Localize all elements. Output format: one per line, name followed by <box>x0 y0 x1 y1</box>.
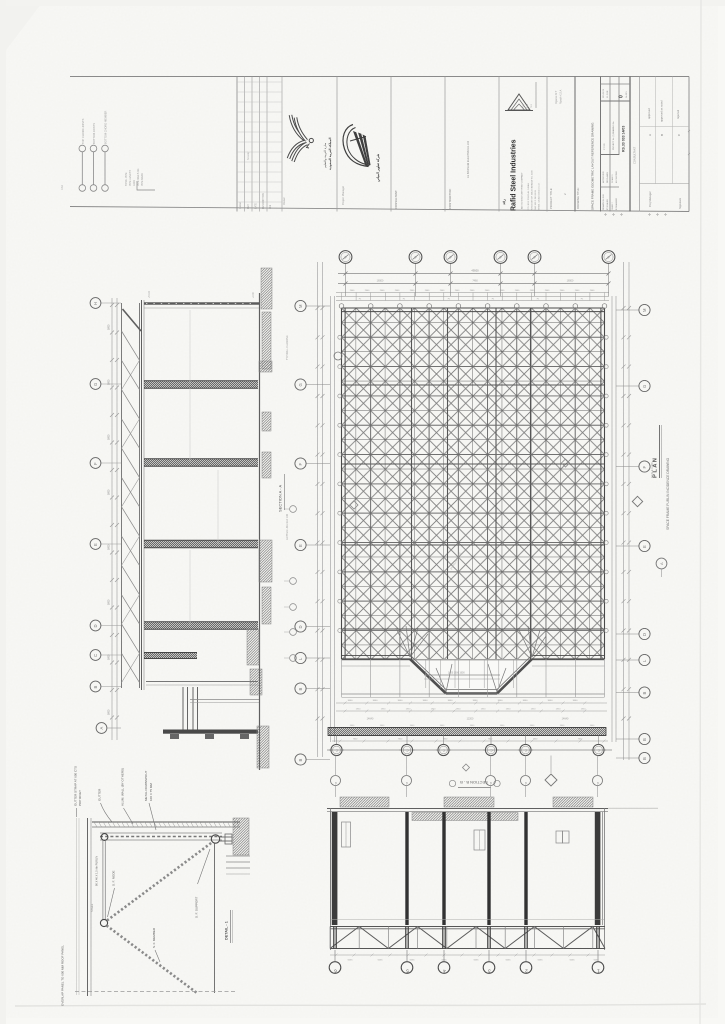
svg-text:SPACE FRAME PURLIN INCIDENCE D: SPACE FRAME PURLIN INCIDENCE DRAWING <box>666 457 670 530</box>
svg-text:CONSULTANT: CONSULTANT <box>633 146 637 164</box>
svg-text:B: B <box>298 688 303 691</box>
svg-text:G: G <box>93 383 98 386</box>
svg-text:3660: 3660 <box>498 700 504 702</box>
svg-text:FAX 966 3 340 1109: FAX 966 3 340 1109 <box>534 189 537 210</box>
svg-text:U: U <box>442 749 446 751</box>
svg-text:D: D <box>298 625 303 628</box>
svg-text:DD B.AMIN: DD B.AMIN <box>606 172 609 183</box>
svg-text:TOP CHORD JOINTS: TOP CHORD JOINTS <box>81 118 85 144</box>
svg-text:P.TYPE: P.TYPE <box>604 142 606 150</box>
svg-text:A: A <box>659 562 664 565</box>
svg-text:1830: 1830 <box>581 709 587 711</box>
svg-text:REVISION: REVISION <box>603 88 605 98</box>
svg-text:U: U <box>335 749 339 751</box>
svg-text:16500: 16500 <box>377 280 384 283</box>
svg-text:C: C <box>93 654 98 657</box>
svg-text:5900: 5900 <box>108 324 111 330</box>
svg-text:3660: 3660 <box>398 700 404 702</box>
svg-text:0: 0 <box>619 95 625 98</box>
svg-text:5555: 5555 <box>570 960 576 962</box>
svg-text:3660: 3660 <box>423 700 429 702</box>
svg-text:16500: 16500 <box>567 280 574 283</box>
svg-text:W: W <box>533 256 537 259</box>
svg-text:W: W <box>344 256 348 259</box>
svg-text:APPROVED: APPROVED <box>602 171 605 183</box>
svg-text:Signature: Signature <box>678 197 682 209</box>
svg-text:OVERLAP PANEL TO 600 MM ROOF P: OVERLAP PANEL TO 600 MM ROOF PANEL <box>61 945 65 1006</box>
svg-text:5900: 5900 <box>108 599 111 605</box>
svg-text:F: F <box>298 463 303 466</box>
svg-text:B: B <box>642 757 647 760</box>
svg-text:1830: 1830 <box>506 709 512 711</box>
svg-text:+5.100: +5.100 <box>149 290 151 298</box>
svg-text:4: 4 <box>597 781 599 785</box>
svg-text:100 X 75 MM: 100 X 75 MM <box>149 783 153 801</box>
svg-text:PROJECT No (7) DRAWING No: PROJECT No (7) DRAWING No <box>612 120 615 150</box>
svg-text:FAX: FAX <box>526 103 529 108</box>
svg-text:AS SHOWN: AS SHOWN <box>615 171 618 183</box>
svg-text:BY B.AMIN: BY B.AMIN <box>606 199 609 210</box>
svg-text:approved as noted: approved as noted <box>660 100 664 122</box>
svg-text:E: E <box>642 545 647 548</box>
svg-text:W: W <box>607 256 611 259</box>
svg-text:W: W <box>414 256 418 259</box>
svg-text:F: F <box>93 462 98 465</box>
svg-text:P.O. BOX 30162 AL JUBAIL: P.O. BOX 30162 AL JUBAIL <box>527 182 530 210</box>
svg-text:F: F <box>642 466 647 469</box>
svg-text:5900: 5900 <box>108 434 111 440</box>
svg-text:1830: 1830 <box>356 709 362 711</box>
svg-text:SCALE 1:200: SCALE 1:200 <box>650 462 654 478</box>
svg-text:SECTION A - A: SECTION A - A <box>278 485 283 512</box>
svg-text:AN ISO 9002 CERTIFIED COMPANY: AN ISO 9002 CERTIFIED COMPANY <box>521 172 524 209</box>
svg-text:CONSULTANT:: CONSULTANT: <box>394 190 398 209</box>
svg-text:4: 4 <box>335 781 337 785</box>
svg-text:المملكة العربية السعودية: المملكة العربية السعودية <box>328 137 332 170</box>
svg-text:12200: 12200 <box>467 718 474 721</box>
svg-text:M: M <box>642 308 647 312</box>
svg-text:3660: 3660 <box>473 700 479 702</box>
svg-text:14640: 14640 <box>562 718 569 721</box>
svg-text:1830: 1830 <box>531 709 537 711</box>
svg-text:3660: 3660 <box>548 700 554 702</box>
svg-text:U: U <box>524 749 528 751</box>
svg-text:4: 4 <box>406 781 408 785</box>
svg-text:DATE: DATE <box>255 203 258 209</box>
svg-text:Project Manager: Project Manager <box>341 186 345 205</box>
svg-text:B.SHAHEED: B.SHAHEED <box>615 197 618 210</box>
svg-text:1: 1 <box>597 969 600 974</box>
svg-text:DESCRIPTION: DESCRIPTION <box>263 193 265 209</box>
svg-text:1830: 1830 <box>556 709 562 711</box>
svg-text:49500: 49500 <box>471 269 479 273</box>
svg-text:B: B <box>642 692 647 695</box>
svg-text:PIPE 60x48: PIPE 60x48 <box>141 173 144 186</box>
svg-text:3660: 3660 <box>348 700 354 702</box>
svg-text:Riyadh K.S.A: Riyadh K.S.A <box>560 89 563 104</box>
svg-text:SECTION B - B: SECTION B - B <box>460 780 488 785</box>
svg-text:5555: 5555 <box>474 960 480 962</box>
svg-text:G: G <box>298 383 303 386</box>
svg-text:3: 3 <box>488 969 491 974</box>
svg-text:3660: 3660 <box>523 700 529 702</box>
svg-text:PIPE LENGTH: PIPE LENGTH <box>129 170 132 186</box>
svg-text:B: B <box>642 738 647 741</box>
svg-text:1830: 1830 <box>481 709 487 711</box>
svg-text:U: U <box>490 749 494 751</box>
svg-text:D: D <box>93 624 98 627</box>
svg-text:1600 1600 1600: 1600 1600 1600 <box>448 673 465 675</box>
svg-text:B: B <box>93 686 98 689</box>
svg-text:GUTTER STRAP AT 600 CTS: GUTTER STRAP AT 600 CTS <box>74 766 78 806</box>
svg-text:DRAWN 03-JUN: DRAWN 03-JUN <box>602 194 605 210</box>
svg-text:rejected: rejected <box>676 109 680 119</box>
svg-text:Seventy: Seventy <box>247 151 250 160</box>
svg-text:1830: 1830 <box>381 709 387 711</box>
svg-text:BOTTOM JOINTS: BOTTOM JOINTS <box>92 123 96 144</box>
svg-text:W: W <box>449 256 453 259</box>
svg-text:POP RIVET: POP RIVET <box>78 790 82 806</box>
svg-text:5900: 5900 <box>108 544 111 550</box>
svg-text:7460: 7460 <box>472 280 478 283</box>
svg-text:ALUM. WALL (BY OTHERS): ALUM. WALL (BY OTHERS) <box>121 768 125 806</box>
svg-text:GUTTER: GUTTER <box>98 788 102 801</box>
svg-text:4: 4 <box>443 969 446 974</box>
svg-text:S. F. MEMBER: S. F. MEMBER <box>152 927 156 948</box>
svg-text:TLX: TLX <box>531 103 533 108</box>
svg-text:AL BASSAM ELECTRICAL CO: AL BASSAM ELECTRICAL CO <box>466 141 470 178</box>
svg-text:1830: 1830 <box>456 709 462 711</box>
svg-text:GRID: GRID <box>133 180 136 186</box>
svg-text:U: U <box>406 749 410 751</box>
svg-text:S. F. SUPPORT: S. F. SUPPORT <box>195 897 199 918</box>
svg-text:1830: 1830 <box>431 709 437 711</box>
svg-text:SPACE FRAME GEOMETRIC LAYOUT R: SPACE FRAME GEOMETRIC LAYOUT REFERENCE D… <box>591 122 595 210</box>
svg-text:U: U <box>597 749 601 751</box>
svg-text:KINGDOM OF SAUDI ARABIA TEL 34: KINGDOM OF SAUDI ARABIA TEL 3400 <box>531 169 534 210</box>
svg-text:REV: REV <box>248 204 250 209</box>
svg-text:CONTRACTOR:: CONTRACTOR: <box>448 188 452 209</box>
svg-text:منارة التربية والتعليم: منارة التربية والتعليم <box>323 142 327 168</box>
svg-text:+0.00: +0.00 <box>253 291 255 298</box>
svg-text:PROJECT TITLE:: PROJECT TITLE: <box>549 187 553 209</box>
svg-text:EMAIL rafid@rafidsteel.com: EMAIL rafid@rafidsteel.com <box>538 183 541 210</box>
svg-text:2: 2 <box>525 969 528 974</box>
svg-text:1830: 1830 <box>406 709 412 711</box>
svg-text:METAL DOWNSPOUT: METAL DOWNSPOUT <box>144 770 148 801</box>
svg-text:M: M <box>298 304 303 308</box>
svg-text:4: 4 <box>525 781 527 785</box>
svg-text:approved: approved <box>647 108 651 119</box>
svg-text:5: 5 <box>406 969 409 974</box>
svg-text:E: E <box>93 543 98 546</box>
svg-text:14640: 14640 <box>367 718 374 721</box>
svg-text:PIPE 48x2.5 DG: PIPE 48x2.5 DG <box>137 168 140 186</box>
svg-text:Colour: Colour <box>239 202 242 209</box>
svg-text:Proj.Manager: Proj.Manager <box>648 191 652 207</box>
svg-text:A: A <box>648 134 652 136</box>
svg-text:Owner: Owner <box>282 197 286 205</box>
svg-text:TYP WALL CLADDING: TYP WALL CLADDING <box>286 335 289 360</box>
svg-text:BOTTOM CHORD MEMBER: BOTTOM CHORD MEMBER <box>104 110 108 144</box>
svg-text:B: B <box>660 134 664 136</box>
svg-text:GUTTER LINE REF 100: GUTTER LINE REF 100 <box>286 513 289 540</box>
svg-text:80 X 40 X 1.5 thk PURLIN: 80 X 40 X 1.5 thk PURLIN <box>95 856 99 886</box>
svg-text:5900: 5900 <box>108 709 111 715</box>
svg-text:S. F. NODE: S. F. NODE <box>112 870 116 886</box>
svg-text:Figures 42 T: Figures 42 T <box>555 90 558 104</box>
svg-text:DRAWING TITLE:: DRAWING TITLE: <box>576 187 580 209</box>
svg-text:5555: 5555 <box>410 960 416 962</box>
svg-text:5900: 5900 <box>108 489 111 495</box>
svg-text:RS.33 033 14/03: RS.33 033 14/03 <box>622 126 626 152</box>
svg-text:Rafid Steel Industries: Rafid Steel Industries <box>511 139 518 211</box>
svg-text:5555: 5555 <box>348 960 354 962</box>
svg-text:G: G <box>642 385 647 388</box>
svg-text:4: 4 <box>490 781 492 785</box>
svg-text:DETAIL - 1: DETAIL - 1 <box>225 921 229 940</box>
svg-text:03 JUNE: 03 JUNE <box>607 90 609 98</box>
svg-text:3660: 3660 <box>373 700 379 702</box>
svg-text:E: E <box>298 544 303 547</box>
svg-text:6: 6 <box>334 969 337 974</box>
svg-text:No REV: No REV <box>626 90 628 98</box>
svg-text:3660: 3660 <box>448 700 454 702</box>
svg-text:W: W <box>499 256 503 259</box>
svg-text:A: A <box>99 727 104 730</box>
svg-text:STEEL: STEEL <box>90 903 94 912</box>
svg-text:B: B <box>298 759 303 762</box>
svg-text:CAD: CAD <box>61 185 64 190</box>
svg-text:SCALE 1: SCALE 1 <box>611 174 614 183</box>
svg-text:CHKD 7: CHKD 7 <box>612 202 614 210</box>
svg-text:D: D <box>642 633 647 636</box>
svg-text:5555: 5555 <box>378 960 384 962</box>
svg-text:3660: 3660 <box>573 700 579 702</box>
svg-text:H: H <box>93 302 98 305</box>
svg-text:TOTAL PIPE: TOTAL PIPE <box>125 172 128 186</box>
svg-text:5555: 5555 <box>506 960 512 962</box>
svg-text:5555: 5555 <box>538 960 544 962</box>
